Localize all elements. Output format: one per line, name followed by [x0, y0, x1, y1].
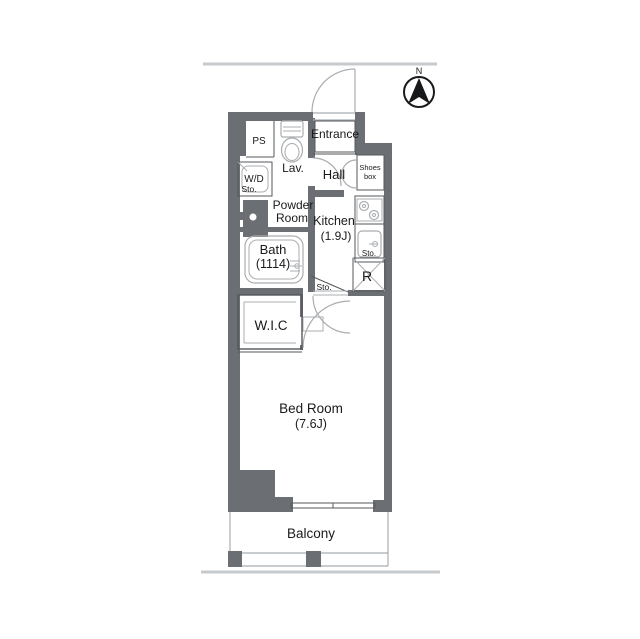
toilet-tank: [281, 121, 303, 137]
powder-room-label-line2: Room: [276, 211, 308, 225]
hall-label: Hall: [323, 167, 346, 182]
ps-label: PS: [252, 136, 266, 147]
wall-right: [384, 147, 392, 512]
north-label: N: [416, 66, 423, 76]
balcony-label: Balcony: [287, 526, 335, 541]
north-compass: N: [404, 66, 434, 107]
powder-room-label-line1: Powder: [273, 198, 314, 212]
wic-label: W.I.C: [255, 318, 288, 333]
wall-hall-kitchen: [308, 190, 344, 197]
bath-label-line2: (1114): [256, 257, 290, 271]
kitchen-label-line1: Kitchen: [313, 214, 355, 228]
wd-storage-label-line2: Sto.: [241, 184, 256, 194]
vanity-tab: [238, 212, 243, 220]
balcony-pillar-center: [306, 551, 321, 567]
lavatory-label: Lav.: [282, 161, 304, 175]
bath-label-line1: Bath: [260, 242, 287, 257]
fridge-label: R: [362, 268, 372, 284]
toilet-bowl-inner: [285, 144, 299, 161]
toilet-bowl: [282, 138, 303, 162]
vanity-basin-icon: [250, 214, 257, 221]
toilet-icon: [281, 121, 303, 162]
kitchen-storage-label: Sto.: [362, 249, 376, 258]
shoes-box-label-line2: box: [364, 172, 376, 181]
stove-burner-center: [363, 205, 366, 208]
bedroom-label-line1: Bed Room: [279, 401, 343, 416]
entrance-area: [312, 69, 357, 154]
front-door-arc: [312, 69, 355, 112]
bedroom-window: [291, 503, 375, 508]
wall-bottom-left-band: [228, 497, 293, 512]
stove-burner-icon: [360, 202, 369, 211]
hall-storage-label: Sto.: [316, 282, 331, 292]
bedroom-label-line2: (7.6J): [295, 417, 327, 431]
shoes-box-label-line1: Shoes: [359, 163, 381, 172]
stove-burner-center2: [373, 214, 376, 217]
wall-bath-wic: [240, 288, 303, 295]
entrance-label: Entrance: [311, 127, 359, 141]
floorplan-svg: N: [0, 0, 640, 639]
kitchen-label-line2: (1.9J): [321, 229, 352, 243]
balcony-pillar-left: [228, 551, 242, 567]
floorplan-page: N: [0, 0, 640, 639]
stove-burner-icon2: [370, 211, 379, 220]
wall-bottom-right-corner: [373, 500, 392, 512]
